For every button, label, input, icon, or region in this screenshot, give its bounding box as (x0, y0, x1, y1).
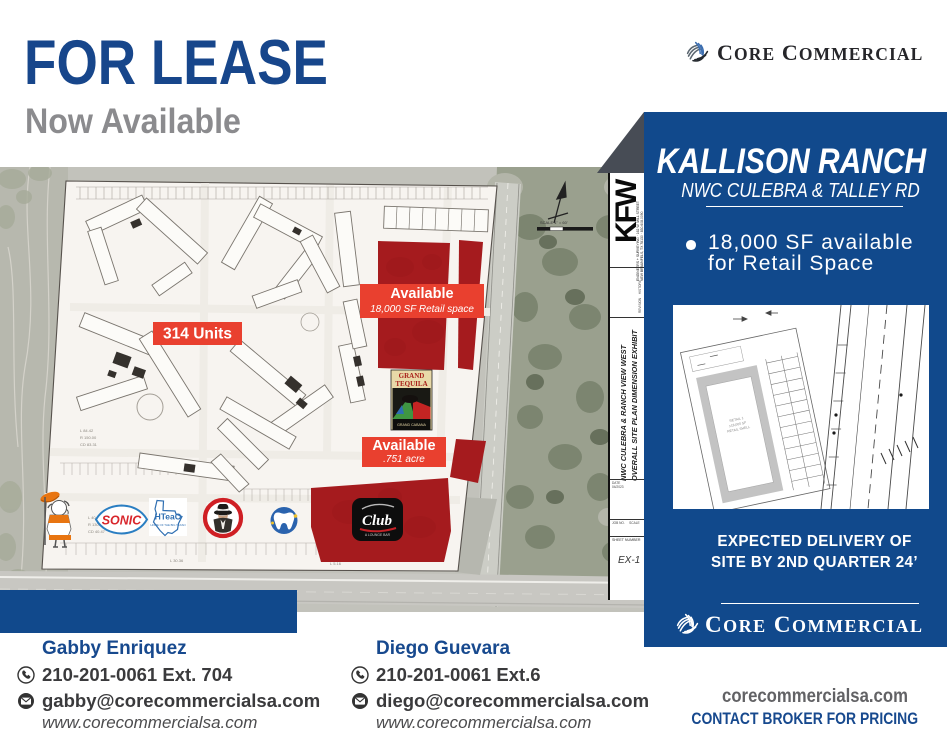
svg-text:314 Units: 314 Units (163, 326, 232, 343)
svg-text:Available: Available (372, 438, 435, 454)
svg-text:Club: Club (362, 513, 393, 529)
svg-text:L 5.16: L 5.16 (330, 561, 342, 566)
svg-text:18,000 SF Retail space: 18,000 SF Retail space (370, 304, 474, 315)
svg-text:CD 40.47: CD 40.47 (88, 529, 106, 534)
svg-text:Available: Available (390, 286, 453, 302)
svg-text:GRAND: GRAND (399, 372, 425, 380)
svg-text:HOME OF THE BIG TEXAN: HOME OF THE BIG TEXAN (150, 523, 185, 527)
svg-text:SONIC: SONIC (102, 512, 142, 527)
svg-text:HTeaO: HTeaO (155, 512, 182, 522)
svg-text:SCALE 1" = 60': SCALE 1" = 60' (540, 220, 568, 225)
svg-text:R 150.00: R 150.00 (80, 435, 97, 440)
svg-text:TEQUILA: TEQUILA (395, 380, 427, 388)
svg-text:L 30.36: L 30.36 (170, 558, 184, 563)
svg-text:.751 acre: .751 acre (383, 454, 425, 465)
svg-text:GRAND CABANA: GRAND CABANA (397, 423, 426, 427)
svg-text:A LOUNGE BAR: A LOUNGE BAR (365, 533, 391, 537)
svg-text:CD 83.31: CD 83.31 (80, 442, 98, 447)
svg-text:L 84.42: L 84.42 (80, 428, 94, 433)
